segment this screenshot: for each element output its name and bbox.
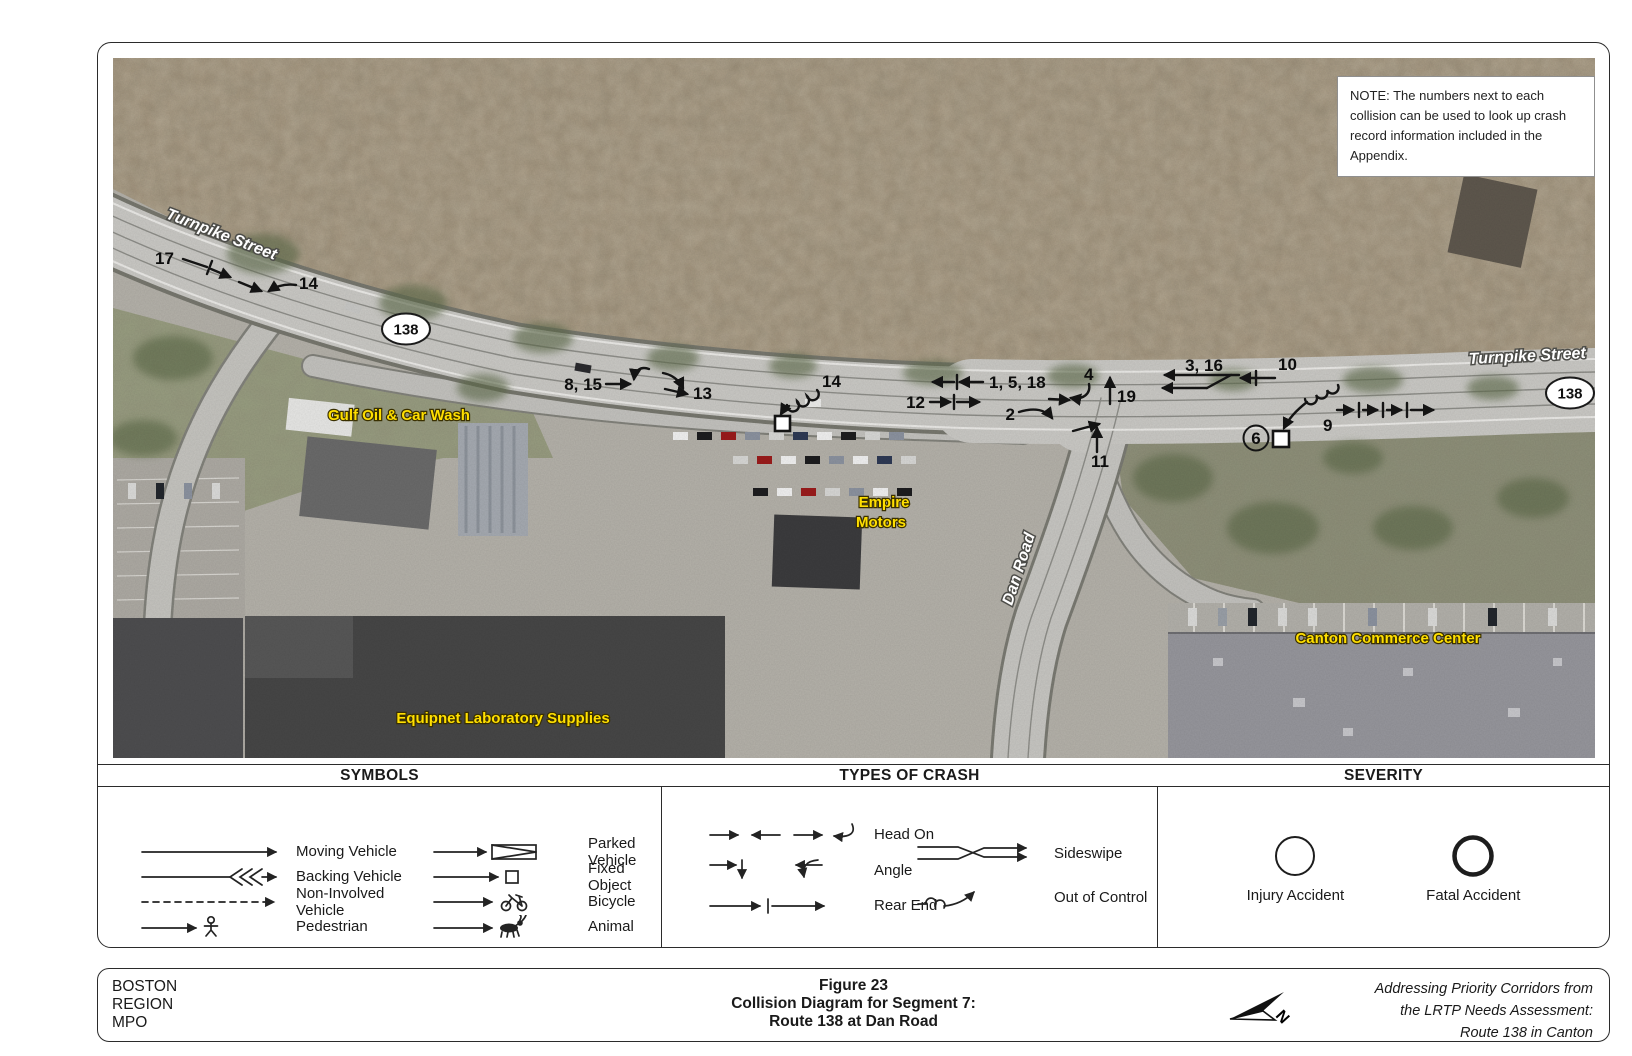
place-label-gulf: Gulf Oil & Car Wash	[328, 407, 470, 424]
svg-text:17: 17	[155, 249, 174, 268]
legend-title-severity: SEVERITY	[1158, 765, 1609, 786]
bicycle-icon	[430, 890, 580, 914]
rear-end-icon	[706, 893, 864, 917]
legend-item-head-on: Head On	[706, 821, 937, 847]
svg-text:9: 9	[1323, 416, 1332, 435]
legend-item-fatal-accident: Fatal Accident	[1426, 833, 1520, 904]
angle-icon	[706, 856, 864, 884]
footer-panel: BOSTON REGION MPO Figure 23 Collision Di…	[97, 968, 1610, 1042]
legend-item-non-involved-vehicle: Non-Involved Vehicle	[138, 889, 430, 914]
legend-severity-cell: Injury Accident Fatal Accident	[1158, 787, 1609, 947]
legend-header-row: SYMBOLS TYPES OF CRASH SEVERITY	[98, 764, 1609, 787]
svg-text:138: 138	[1557, 386, 1582, 403]
legend-item-bicycle: Bicycle	[430, 889, 661, 914]
non-involved-vehicle-icon	[138, 890, 288, 914]
route-shield-left: 138	[382, 314, 430, 345]
legend-item-pedestrian: Pedestrian	[138, 914, 430, 939]
svg-text:13: 13	[693, 384, 712, 403]
legend-item-sideswipe: Sideswipe	[914, 839, 1147, 867]
legend-item-angle: Angle	[706, 856, 937, 884]
legend-item-injury-accident: Injury Accident	[1247, 833, 1345, 904]
north-arrow: N	[1226, 987, 1302, 1034]
north-label: N	[1272, 1007, 1292, 1027]
north-arrow-icon: N	[1226, 987, 1302, 1029]
svg-text:14: 14	[822, 372, 841, 391]
legend-item-animal: Animal	[430, 914, 661, 939]
place-label-empire-2: Motors	[856, 514, 906, 531]
svg-text:2: 2	[1006, 405, 1015, 424]
svg-text:8, 15: 8, 15	[564, 375, 602, 394]
note-box: NOTE: The numbers next to each collision…	[1337, 76, 1595, 177]
sideswipe-icon	[914, 839, 1044, 867]
backing-vehicle-icon	[138, 865, 288, 889]
pedestrian-icon	[138, 915, 288, 939]
fixed-object-icon	[430, 865, 580, 889]
legend-item-rear-end: Rear End	[706, 893, 937, 917]
svg-text:3, 16: 3, 16	[1185, 356, 1223, 375]
moving-vehicle-icon	[138, 840, 288, 864]
legend-symbols-cell: Moving Vehicle Parked Vehicle Backing Ve…	[98, 787, 661, 947]
out-of-control-icon	[914, 883, 1044, 911]
svg-text:10: 10	[1278, 355, 1297, 374]
figure-page: Turnpike Street Turnpike Street Dan Road…	[0, 0, 1632, 1056]
place-label-equipnet: Equipnet Laboratory Supplies	[396, 710, 609, 727]
svg-text:12: 12	[906, 393, 925, 412]
animal-icon	[430, 915, 580, 939]
route-shield-right: 138	[1546, 378, 1594, 409]
svg-text:1, 5, 18: 1, 5, 18	[989, 373, 1046, 392]
svg-text:19: 19	[1117, 387, 1136, 406]
legend-types-cell: Head On Angle Rear End Sideswipe	[661, 787, 1158, 947]
place-label-canton: Canton Commerce Center	[1295, 630, 1480, 647]
note-text: NOTE: The numbers next to each collision…	[1350, 88, 1566, 163]
parked-vehicle-icon	[430, 840, 580, 864]
report-credit: Addressing Priority Corridors from the L…	[1375, 979, 1593, 1044]
legend-title-types: TYPES OF CRASH	[661, 765, 1158, 786]
place-label-empire-1: Empire	[859, 494, 910, 511]
legend-title-symbols: SYMBOLS	[98, 765, 661, 786]
legend-item-fixed-object: Fixed Object	[430, 864, 661, 889]
legend-item-out-of-control: Out of Control	[914, 883, 1147, 911]
svg-text:6: 6	[1251, 429, 1260, 448]
svg-text:14: 14	[299, 274, 318, 293]
injury-accident-icon	[1272, 833, 1318, 879]
fatal-accident-icon	[1450, 833, 1496, 879]
head-on-icon	[706, 821, 864, 847]
legend-body: Moving Vehicle Parked Vehicle Backing Ve…	[98, 787, 1609, 947]
svg-text:138: 138	[393, 322, 418, 339]
svg-text:4: 4	[1084, 365, 1094, 384]
collision-map: Turnpike Street Turnpike Street Dan Road…	[113, 58, 1595, 758]
legend-item-moving-vehicle: Moving Vehicle	[138, 839, 430, 864]
main-panel: Turnpike Street Turnpike Street Dan Road…	[97, 42, 1610, 948]
svg-text:11: 11	[1091, 452, 1109, 471]
